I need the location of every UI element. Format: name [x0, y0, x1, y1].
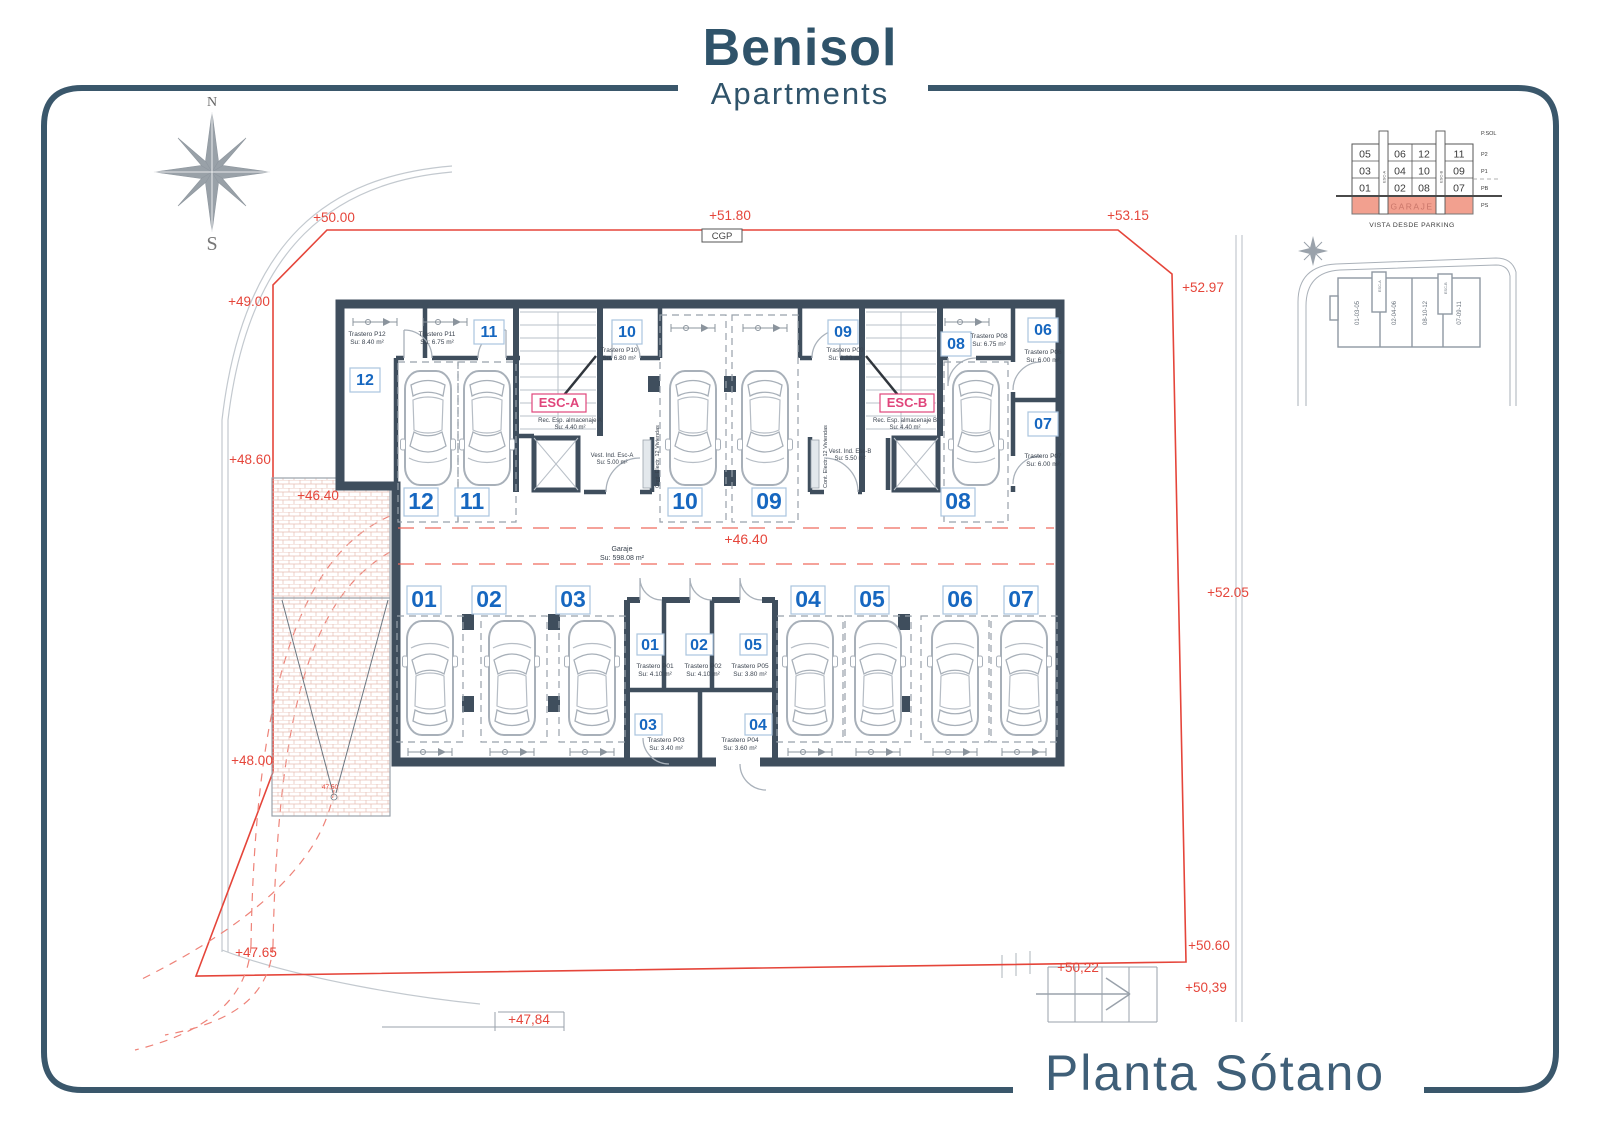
- elev-left-4: +47.65: [235, 945, 277, 960]
- parking-number-12: 12: [404, 488, 438, 516]
- esc-b-vestibule-label: Vest. Ind. Esc-B: [829, 449, 872, 455]
- parking-number-07: 07: [1004, 586, 1038, 614]
- svg-text:10: 10: [672, 488, 698, 514]
- svg-text:ESC-A: ESC-A: [1378, 280, 1382, 292]
- storage-label-p09: Trastero P09: [826, 347, 864, 354]
- svg-text:Su: 8.40 m²: Su: 8.40 m²: [350, 339, 384, 346]
- esc-a-storage-label: Rec. Esp. almacenaje A: [538, 418, 602, 424]
- svg-text:ESC-B: ESC-B: [887, 395, 927, 410]
- parking-view-caption: VISTA DESDE PARKING: [1369, 222, 1455, 229]
- svg-text:12: 12: [408, 488, 434, 514]
- storage-label-p11: Trastero P11: [419, 331, 456, 338]
- esc-a-label: ESC-A: [532, 394, 586, 412]
- site-key-star: [1298, 236, 1328, 266]
- elev-ramp: +46.40: [297, 488, 339, 503]
- svg-text:P.SOL: P.SOL: [1481, 131, 1497, 137]
- elev-right-4: +50,39: [1185, 980, 1227, 995]
- elev-right-1: +52.97: [1182, 280, 1224, 295]
- parking-number-08: 08: [941, 488, 975, 516]
- storage-label-p06: Trastero P06: [1024, 349, 1062, 356]
- esc-b-storage-label: Rec. Esp. almacenaje B: [873, 418, 937, 424]
- storage-box-05: 05: [740, 634, 767, 655]
- svg-text:P1: P1: [1481, 169, 1488, 175]
- svg-text:06: 06: [1394, 149, 1406, 161]
- svg-text:Su: 3.40 m²: Su: 3.40 m²: [649, 745, 683, 752]
- svg-text:08: 08: [1418, 183, 1430, 195]
- svg-text:05: 05: [1359, 149, 1371, 161]
- svg-text:Su: 4.10 m²: Su: 4.10 m²: [686, 671, 720, 678]
- svg-text:10: 10: [1418, 166, 1430, 178]
- storage-box-09: 09: [828, 320, 858, 344]
- svg-text:Su: 6.00 m²: Su: 6.00 m²: [1026, 461, 1060, 468]
- svg-text:08: 08: [945, 488, 971, 514]
- svg-text:02: 02: [1394, 183, 1406, 195]
- svg-text:06: 06: [947, 586, 973, 612]
- elev-ramp-low: 47,50: [322, 784, 339, 791]
- elev-left-2: +48.60: [229, 452, 271, 467]
- svg-text:Su: 6.80 m²: Su: 6.80 m²: [828, 355, 862, 362]
- storage-label-p02: Trastero P02: [684, 663, 722, 670]
- svg-text:Su: 6.75 m²: Su: 6.75 m²: [420, 339, 454, 346]
- svg-text:Su: 3.80 m²: Su: 3.80 m²: [733, 671, 767, 678]
- svg-text:12: 12: [1418, 149, 1430, 161]
- svg-text:07-09-11: 07-09-11: [1457, 301, 1463, 325]
- svg-text:Su: 4.40 m²: Su: 4.40 m²: [889, 425, 920, 431]
- storage-box-08: 08: [941, 332, 971, 356]
- svg-text:Su: 5.50 m²: Su: 5.50 m²: [834, 456, 865, 462]
- svg-text:Garaje: Garaje: [611, 546, 632, 553]
- svg-text:06: 06: [1034, 322, 1052, 339]
- elev-bottom-2: +47,84: [508, 1012, 550, 1027]
- svg-text:05: 05: [744, 637, 762, 654]
- svg-text:P2: P2: [1481, 152, 1488, 158]
- elev-left-1: +49.00: [228, 294, 270, 309]
- svg-text:09: 09: [1453, 166, 1465, 178]
- svg-text:Su: 4.10 m²: Su: 4.10 m²: [638, 671, 672, 678]
- parking-number-02: 02: [472, 586, 506, 614]
- svg-text:CGP: CGP: [712, 231, 733, 242]
- esc-a-vestibule-label: Vest. Ind. Esc-A: [591, 453, 634, 459]
- svg-text:07: 07: [1034, 416, 1052, 433]
- parking-number-09: 09: [752, 488, 786, 516]
- svg-text:11: 11: [460, 488, 485, 514]
- svg-text:09: 09: [756, 488, 782, 514]
- vehicle-ramp: [272, 478, 390, 816]
- storage-box-01: 01: [637, 634, 664, 655]
- storage-box-12: 12: [350, 368, 380, 392]
- svg-text:Su: 6.75 m²: Su: 6.75 m²: [972, 341, 1006, 348]
- storage-label-p12: Trastero P12: [348, 331, 386, 338]
- electrical-cabinet-a: [643, 440, 651, 488]
- storage-box-06: 06: [1028, 318, 1058, 342]
- svg-text:PB: PB: [1481, 186, 1489, 192]
- storage-label-p08: Trastero P08: [970, 333, 1008, 340]
- elevator-esc-a: [534, 438, 578, 490]
- svg-text:PS: PS: [1481, 203, 1489, 209]
- svg-text:ESC-A: ESC-A: [539, 395, 580, 410]
- storage-box-04: 04: [745, 714, 772, 735]
- elev-right-2: +52.05: [1207, 585, 1249, 600]
- compass-north-label: N: [207, 95, 217, 110]
- compass-rose: N S: [154, 95, 270, 255]
- svg-text:08-10-12: 08-10-12: [1423, 300, 1429, 325]
- cabinet-a-label: Cont. Electr. 12 Viviendas: [655, 425, 661, 488]
- storage-box-11: 11: [474, 320, 504, 344]
- parking-number-10: 10: [668, 488, 702, 516]
- compass-south-label: S: [206, 233, 217, 255]
- svg-text:01: 01: [641, 637, 659, 654]
- svg-text:04: 04: [795, 586, 821, 612]
- svg-text:ESC-B: ESC-B: [1444, 282, 1448, 294]
- svg-text:09: 09: [834, 324, 852, 341]
- elev-top-right: +53.15: [1107, 208, 1149, 223]
- svg-text:04: 04: [1394, 166, 1406, 178]
- floor-plan-page: 12 11 10 09 08 01 02 03 04 05: [0, 0, 1600, 1131]
- svg-text:01: 01: [1359, 183, 1371, 195]
- project-title: Benisol: [630, 22, 970, 74]
- storage-label-p04: Trastero P04: [721, 737, 759, 744]
- parking-number-03: 03: [556, 586, 590, 614]
- storage-box-03: 03: [635, 714, 662, 735]
- svg-text:Su: 6.80 m²: Su: 6.80 m²: [602, 355, 636, 362]
- parking-number-05: 05: [855, 586, 889, 614]
- parking-number-01: 01: [407, 586, 441, 614]
- floor-plan-drawing: 12 11 10 09 08 01 02 03 04 05: [0, 0, 1600, 1131]
- storage-label-p07: Trastero P07: [1024, 453, 1062, 460]
- storage-box-10: 10: [612, 320, 642, 344]
- svg-text:Su: 4.40 m²: Su: 4.40 m²: [554, 425, 585, 431]
- svg-text:11: 11: [481, 324, 498, 341]
- svg-text:02: 02: [690, 637, 708, 654]
- cgp-marker: CGP: [702, 229, 742, 242]
- parking-number-11: 11: [455, 488, 489, 516]
- storage-label-p05: Trastero P05: [731, 663, 769, 670]
- elev-top-left: +50.00: [313, 210, 355, 225]
- svg-text:07: 07: [1008, 586, 1034, 612]
- svg-text:11: 11: [1454, 149, 1465, 161]
- garage-level-label: +46.40: [724, 531, 767, 547]
- svg-text:03: 03: [560, 586, 586, 612]
- svg-text:02: 02: [476, 586, 502, 612]
- svg-text:04: 04: [749, 717, 767, 734]
- svg-text:02-04-06: 02-04-06: [1392, 300, 1398, 325]
- site-key-plan: 01-03-05 02-04-06 08-10-12 07-09-11 ESC-…: [1298, 236, 1516, 406]
- storage-label-p10: Trastero P10: [600, 347, 638, 354]
- storage-box-07: 07: [1028, 412, 1058, 436]
- elev-bottom-1: +50,22: [1057, 960, 1099, 975]
- svg-text:03: 03: [639, 717, 657, 734]
- svg-text:Su: 5.00 m²: Su: 5.00 m²: [596, 460, 627, 466]
- svg-text:08: 08: [947, 336, 965, 353]
- parking-number-04: 04: [791, 586, 825, 614]
- storage-label-p01: Trastero P01: [636, 663, 674, 670]
- cabinet-b-label: Cont. Electr. 12 Viviendas: [823, 425, 829, 488]
- elev-right-3: +50.60: [1188, 938, 1230, 953]
- parking-number-06: 06: [943, 586, 977, 614]
- project-subtitle: Apartments: [630, 78, 970, 109]
- svg-text:01-03-05: 01-03-05: [1355, 300, 1361, 325]
- svg-text:01: 01: [411, 586, 437, 612]
- sheet-title: Planta Sótano: [1040, 1048, 1390, 1098]
- project-title-block: Benisol Apartments: [630, 22, 970, 109]
- elevator-esc-b: [894, 438, 938, 490]
- svg-text:Su: 3.60 m²: Su: 3.60 m²: [723, 745, 757, 752]
- electrical-cabinet-b: [811, 440, 819, 488]
- esc-b-label: ESC-B: [880, 394, 934, 412]
- svg-text:Su: 6.00 m²: Su: 6.00 m²: [1026, 357, 1060, 364]
- svg-text:ESC-A: ESC-A: [1382, 170, 1387, 183]
- south-exit-opening: [716, 755, 760, 769]
- elev-left-3: +48.00: [231, 753, 273, 768]
- svg-text:12: 12: [356, 372, 374, 389]
- elev-top-center: +51.80: [709, 208, 751, 223]
- storage-box-02: 02: [686, 634, 713, 655]
- svg-text:10: 10: [618, 324, 636, 341]
- storage-label-p03: Trastero P03: [647, 737, 685, 744]
- sheet-title-block: Planta Sótano: [1040, 1048, 1390, 1098]
- garage-band-label: GARAJE: [1390, 202, 1433, 212]
- svg-text:05: 05: [859, 586, 885, 612]
- svg-text:Su: 598.08 m²: Su: 598.08 m²: [600, 555, 645, 562]
- svg-text:ESC-B: ESC-B: [1439, 170, 1444, 183]
- svg-text:03: 03: [1359, 166, 1371, 178]
- svg-text:07: 07: [1453, 183, 1465, 195]
- parking-view-diagram: 05 06 12 11 03 04 10 09 01 02 08 07 GARA…: [1336, 131, 1502, 229]
